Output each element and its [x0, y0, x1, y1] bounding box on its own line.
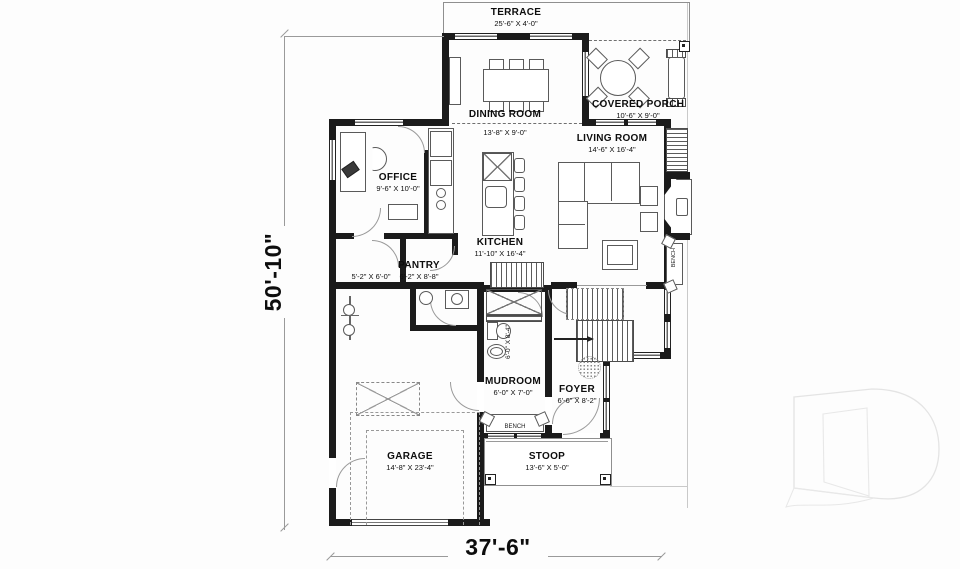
room-label-kitchen: KITCHEN 11'-10" X 16'-4": [462, 237, 538, 258]
bench-label: BENCH: [671, 248, 677, 267]
refrigerator: [430, 131, 452, 157]
room-label-foyer: FOYER 6'-6" X 8'-2": [545, 384, 609, 405]
dining-chair: [489, 59, 504, 70]
sofa-cushion-line: [559, 224, 585, 225]
basement-stairs: [490, 262, 544, 288]
roof-eave-line: [687, 3, 688, 508]
car-outline: [366, 430, 464, 525]
plant-icon: [578, 356, 601, 379]
cooktop-burner: [436, 188, 446, 198]
wall: [442, 33, 449, 126]
sectional-sofa-left: [558, 201, 588, 249]
width-dimension-label: 37'-6": [446, 534, 550, 562]
height-dimension-label: 50'-10": [260, 220, 288, 324]
window: [355, 119, 403, 126]
builder-logo-watermark: [776, 376, 960, 524]
room-label-living-room: LIVING ROOM 14'-6" X 16'-4": [568, 133, 656, 154]
dimension-line-horizontal: [330, 556, 448, 557]
dining-table: [483, 69, 549, 102]
sofa-cushion-line: [584, 163, 585, 201]
wall: [332, 233, 354, 239]
stairs-upper-flight: [566, 288, 624, 320]
window: [455, 33, 497, 40]
washer-door: [451, 293, 463, 305]
porch-bench: [668, 57, 685, 99]
island-stool: [514, 177, 525, 192]
floor-plan-canvas: BENCH 6'-0" X 8'-4" BENCH: [0, 0, 960, 569]
garage-storage-area: [356, 382, 420, 416]
cooktop-burner: [436, 200, 446, 210]
wall: [646, 282, 664, 289]
shelf: [486, 315, 542, 322]
bench-label: BENCH: [504, 424, 525, 430]
room-label-closet: 5'-2" X 6'-0": [342, 272, 400, 281]
wall: [410, 325, 484, 331]
stair-direction-arrow: [554, 338, 588, 340]
door-swing: [398, 126, 425, 153]
porch-post: [679, 41, 690, 52]
dining-chair: [529, 59, 544, 70]
island-stool: [514, 196, 525, 211]
wall: [329, 282, 484, 289]
window-bench: BENCH: [666, 243, 683, 285]
dimension-extension-line: [284, 36, 444, 37]
mudroom-closet: [486, 289, 542, 315]
dimension-line-horizontal: [548, 556, 662, 557]
porch-round-table: [600, 60, 636, 96]
bike-frame: [341, 315, 359, 316]
armchair-seat: [607, 245, 633, 265]
dimension-line-vertical: [284, 318, 285, 530]
door-opening: [329, 458, 336, 488]
side-table: [640, 186, 658, 206]
door-swing: [352, 208, 381, 237]
bike-wheel: [343, 324, 355, 336]
stoop-post: [485, 474, 496, 485]
window: [530, 33, 572, 40]
room-label-dining-room: DINING ROOM 13'-8" X 9'-0": [460, 109, 550, 140]
oven: [430, 160, 452, 186]
island-stool: [514, 215, 525, 230]
window: [596, 119, 624, 126]
dimension-line-vertical: [284, 36, 285, 226]
fireplace-firebox: [676, 198, 688, 216]
room-label-terrace: TERRACE 25'-6" X 4'-0": [476, 7, 556, 28]
dishwasher: [483, 153, 512, 181]
window: [628, 119, 656, 126]
room-label-stoop: STOOP 13'-6" X 5'-0": [510, 451, 584, 472]
room-label-garage: GARAGE 14'-8" X 23'-4": [372, 451, 448, 472]
window: [329, 140, 336, 180]
laundry-sink: [419, 291, 433, 305]
island-stool: [514, 158, 525, 173]
roof-eave-line: [610, 486, 688, 487]
sofa-cushion-line: [611, 163, 612, 201]
buffet-cabinet: [449, 57, 461, 105]
office-side-table: [388, 204, 418, 220]
bathroom-dims: 6'-0" X 8'-4": [505, 316, 513, 368]
kitchen-sink: [485, 186, 507, 208]
stair-rail-line: [577, 285, 647, 286]
side-table: [640, 212, 658, 232]
stair-arrow-head: [587, 336, 594, 342]
room-label-office: OFFICE 9'-6" X 10'-0": [366, 172, 430, 193]
bathroom-sink-basin: [490, 347, 503, 356]
shelving: [666, 128, 688, 172]
porch-open-edge: [589, 40, 686, 41]
window: [603, 402, 610, 430]
stoop-step-line: [486, 441, 608, 442]
room-label-covered-porch: COVERED PORCH 10'-6" X 9'-0": [592, 99, 684, 120]
window: [664, 322, 671, 348]
stoop-post: [600, 474, 611, 485]
fireplace-side: [664, 172, 690, 179]
office-chair: [363, 147, 387, 171]
sectional-sofa: [558, 162, 640, 204]
dining-chair: [509, 59, 524, 70]
